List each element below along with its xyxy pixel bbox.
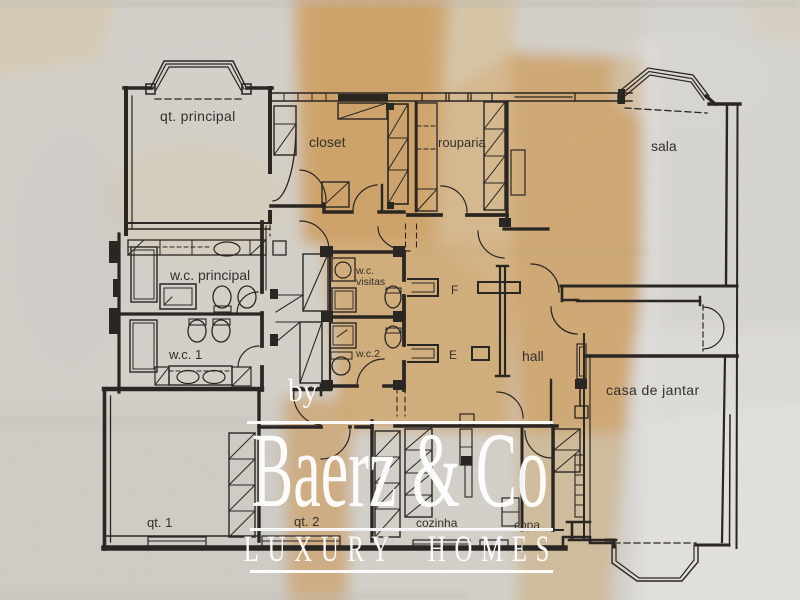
svg-text:closet: closet xyxy=(309,134,346,150)
svg-text:qt. 1: qt. 1 xyxy=(147,515,172,530)
svg-text:qt. principal: qt. principal xyxy=(160,108,236,124)
svg-text:rouparia: rouparia xyxy=(438,135,486,150)
svg-text:w.c. 1: w.c. 1 xyxy=(168,347,202,362)
svg-text:w.c. principal: w.c. principal xyxy=(169,267,250,283)
svg-text:F: F xyxy=(451,283,458,297)
svg-text:casa de jantar: casa de jantar xyxy=(606,382,700,398)
svg-text:hall: hall xyxy=(522,348,544,364)
svg-text:w.c.2: w.c.2 xyxy=(355,348,380,360)
svg-text:visitas: visitas xyxy=(356,276,385,288)
svg-text:E: E xyxy=(449,348,457,362)
svg-text:sala: sala xyxy=(651,138,677,154)
